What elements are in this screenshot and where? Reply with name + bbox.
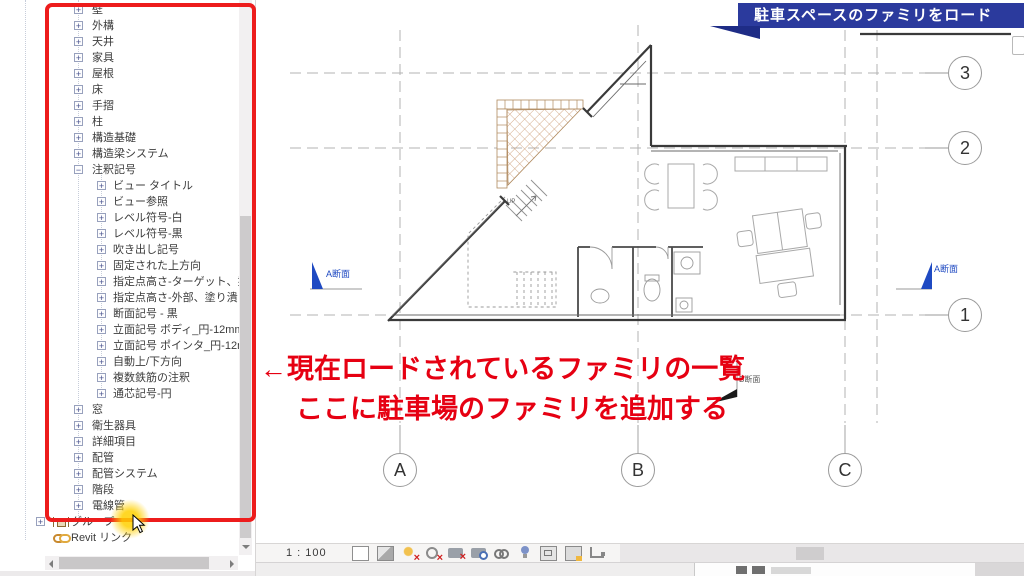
mouse-cursor <box>132 514 146 534</box>
walls <box>388 34 1011 321</box>
status-bar <box>256 562 1024 576</box>
grid-bubble-label: C <box>839 460 852 480</box>
section-marker-a-right[interactable]: A断面 <box>896 262 958 289</box>
expand-toggle[interactable]: + <box>36 517 45 526</box>
panel-bottom-strip <box>0 571 256 576</box>
grid-bubble-label: 2 <box>960 138 970 158</box>
highlight-box <box>45 3 256 522</box>
status-bar-dropdown[interactable] <box>771 567 811 574</box>
bathroom <box>578 247 703 317</box>
hatched-floor-area <box>497 100 583 188</box>
tree-horizontal-scrollbar[interactable] <box>45 556 238 570</box>
annotation-line2: ここに駐車場のファミリを追加する <box>296 389 745 429</box>
view-control-bar: 1 : 100 < <box>256 543 620 563</box>
visual-style-icon[interactable] <box>377 546 394 561</box>
grid-bubble-label: A <box>394 460 406 480</box>
grid-bubbles-bottom: A B C <box>384 425 862 487</box>
section-label: A断面 <box>326 268 350 279</box>
show-crop-region-icon[interactable] <box>471 548 486 558</box>
revit-window: +壁+外構+天井+家具+屋根+床+手摺+柱+構造基礎+構造梁システム−注釈記号+… <box>0 0 1024 576</box>
status-bar-icon[interactable] <box>752 566 765 574</box>
canvas-horizontal-scrollbar[interactable] <box>620 543 1024 563</box>
scroll-right-button[interactable] <box>230 560 234 568</box>
callout-banner: 駐車スペースのファミリをロード <box>738 3 1024 28</box>
hide-analytical-model-icon[interactable] <box>565 546 582 561</box>
tree-horizontal-scrollbar-thumb[interactable] <box>59 557 209 569</box>
temporary-view-properties-icon[interactable] <box>540 546 557 561</box>
view-scale[interactable]: 1 : 100 <box>286 547 327 559</box>
floor-plan: UP <box>256 0 1024 543</box>
sun-path-icon[interactable] <box>402 546 417 559</box>
annotation-text: ←現在ロードされているファミリの一覧 ここに駐車場のファミリを追加する <box>260 349 745 429</box>
temporary-hide-isolate-icon[interactable] <box>494 546 509 559</box>
drawing-canvas[interactable]: UP <box>256 0 1024 543</box>
stairs: UP <box>468 180 556 307</box>
reveal-constraints-icon[interactable] <box>590 547 604 558</box>
grid-bubble-label: 1 <box>960 305 970 325</box>
reveal-hidden-elements-icon[interactable] <box>517 546 532 559</box>
view-control-icons <box>348 545 608 562</box>
banner-fold <box>710 26 760 39</box>
section-label: A断面 <box>934 263 958 274</box>
project-browser-panel: +壁+外構+天井+家具+屋根+床+手摺+柱+構造基礎+構造梁システム−注釈記号+… <box>0 0 256 576</box>
shadows-icon[interactable] <box>425 546 440 559</box>
grid-bubble-label: B <box>632 460 644 480</box>
canvas-horizontal-scrollbar-thumb[interactable] <box>796 547 824 560</box>
revit-link-icon <box>53 534 65 543</box>
annotation-line1: ←現在ロードされているファミリの一覧 <box>260 349 745 389</box>
status-bar-icon[interactable] <box>736 566 747 574</box>
canvas-scrollbar-top-button[interactable] <box>1012 36 1024 55</box>
grid-bubbles-right: 3 2 1 <box>925 57 982 332</box>
section-marker-a-left[interactable]: A断面 <box>310 262 362 289</box>
crop-view-icon[interactable] <box>448 548 463 558</box>
detail-level-icon[interactable] <box>352 546 369 561</box>
status-bar-controls <box>694 563 977 576</box>
scroll-down-button[interactable] <box>239 539 252 555</box>
grid-bubble-label: 3 <box>960 63 970 83</box>
scroll-left-button[interactable] <box>49 560 53 568</box>
status-bar-right-block <box>975 563 1024 576</box>
